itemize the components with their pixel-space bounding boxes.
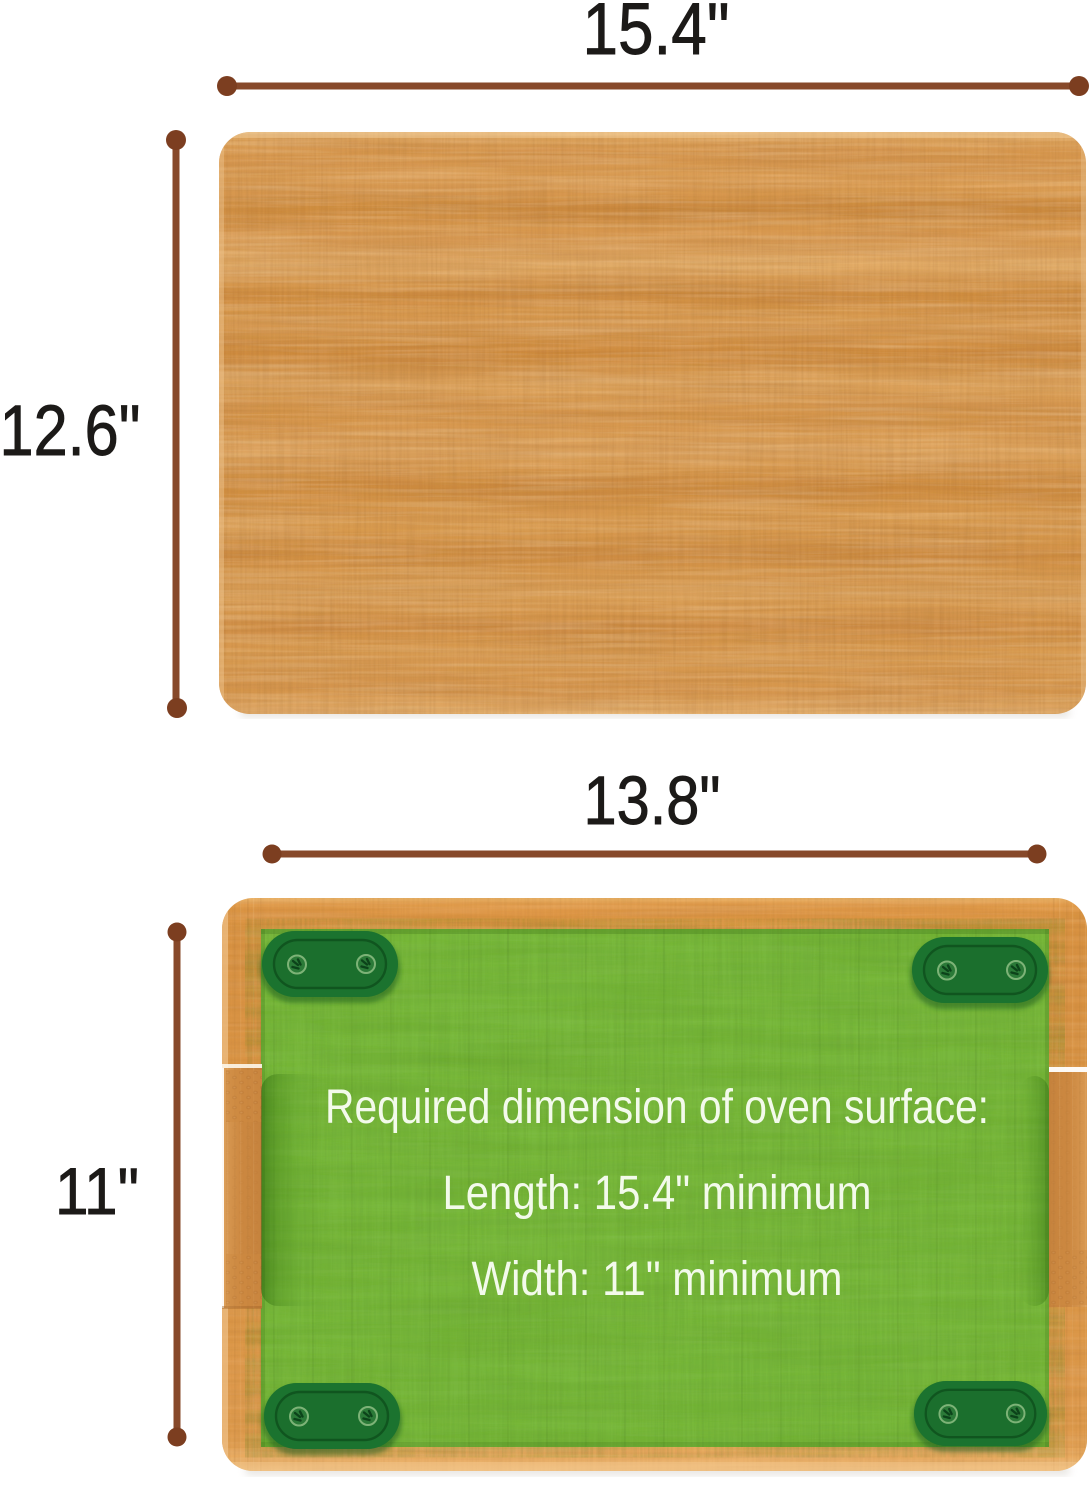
svg-text:Width: 11" minimum: Width: 11" minimum bbox=[472, 1253, 843, 1306]
svg-text:12.6": 12.6" bbox=[0, 392, 141, 471]
svg-text:Length: 15.4" minimum: Length: 15.4" minimum bbox=[443, 1167, 872, 1220]
svg-text:Required dimension of oven sur: Required dimension of oven surface: bbox=[325, 1081, 989, 1134]
svg-text:13.8": 13.8" bbox=[584, 762, 721, 839]
svg-text:11": 11" bbox=[55, 1154, 139, 1228]
svg-text:15.4": 15.4" bbox=[583, 0, 730, 70]
